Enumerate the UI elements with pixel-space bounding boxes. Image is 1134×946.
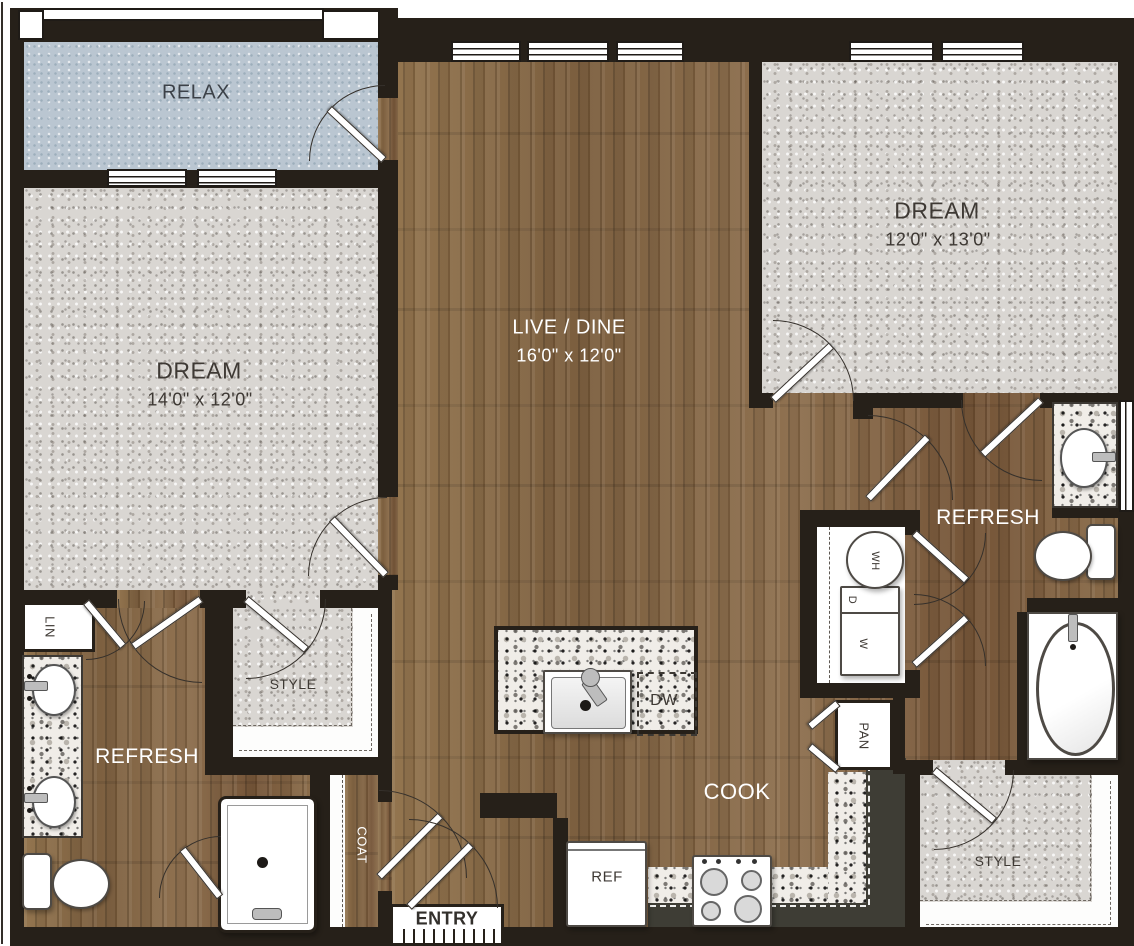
cabinet-right-run [866,758,906,927]
vanity-left-faucet-2 [24,793,48,803]
wall-laundry-top [800,510,920,527]
room-label-style-left: STYLE [270,676,317,692]
room-label-style-right: STYLE [975,853,1022,869]
stove-burner-3 [701,901,721,921]
room-dims-dream-left: 14'0" x 12'0" [147,390,252,411]
linen-closet [22,602,95,652]
wall-style-right-top-b [1005,760,1118,775]
wall-living-left-c [378,188,398,497]
wall-tub-left [1017,612,1027,760]
label-refrigerator: REF [591,869,623,886]
window-bedroom-right-1 [849,41,934,62]
room-dims-live-dine: 16'0" x 12'0" [516,346,621,367]
plan-outer-hairline [1,2,3,944]
room-label-relax: RELAX [162,82,230,105]
room-label-coat: COAT [355,826,370,863]
room-label-cook: COOK [704,779,771,805]
wall-style-left-side [205,608,233,757]
vanity-left-dot-1a [27,674,32,679]
wall-bedroom-right-bottom-a [749,393,773,408]
window-living-1 [451,41,521,62]
room-label-linen: LIN [43,616,58,638]
label-washer: W [857,639,869,650]
refrigerator-top-line [568,849,645,851]
window-bedroom-right-2 [941,41,1024,62]
room-label-entry: ENTRY [416,909,479,930]
bathtub-faucet [1068,614,1078,642]
entry-threshold-ticks [395,929,500,943]
vanity-left-dot-2b [27,808,32,813]
vanity-left-dot-1b [27,696,32,701]
wall-style-left-bottom [205,757,392,775]
room-label-dream-left: DREAM [156,358,242,385]
room-dims-dream-right: 12'0" x 13'0" [885,230,990,251]
window-living-2 [527,41,609,62]
floor-plan: RELAX DREAM 14'0" x 12'0" LIVE / DINE 16… [0,0,1134,946]
wall-pantry-right [893,698,905,774]
toilet-left-bowl [52,859,110,909]
wall-living-left-b [378,160,398,188]
label-dishwasher: DW [650,692,678,710]
toilet-right-bowl [1034,531,1092,581]
wall-tub-top [1027,598,1118,612]
stove-knob-4 [752,859,757,864]
island-sink-drain [580,700,591,711]
room-label-refresh-left: REFRESH [95,745,199,769]
wall-laundry-right-b [905,670,920,683]
room-label-live-dine: LIVE / DINE [512,317,625,340]
window-balcony-2 [197,169,277,187]
stove-burner-4 [734,895,762,923]
stove-burner-2 [741,870,762,891]
wall-style-right-left [905,775,920,927]
bathtub [1036,622,1115,756]
balcony-post-left [18,10,44,40]
balcony-post-right [322,10,380,40]
laundry-door-track-dash [829,527,831,683]
shower-control [252,908,282,920]
wall-kitchen-stub [480,793,557,818]
stove-knob-3 [736,859,741,864]
window-living-3 [616,41,684,62]
wall-laundry-left [800,527,817,698]
stove-burner-1 [700,868,728,896]
wall-style-right-top-a [905,760,933,775]
vanity-left-dot-2a [27,786,32,791]
wall-bottom-outer [10,927,1134,946]
stove-knob-2 [716,859,721,864]
bathtub-drain [1070,644,1076,650]
wall-living-left-d [378,575,398,590]
room-label-pantry: PAN [857,722,872,749]
window-balcony-1 [107,169,187,187]
toilet-left-tank [22,853,52,910]
counter-right-dash [868,765,871,905]
balcony-rail [40,8,324,21]
stove-knob-1 [702,859,707,864]
wall-vanity-toilet-divider [1052,508,1118,518]
wall-laundry-bottom [800,683,920,698]
washer-dryer-divider [840,612,900,614]
vanity-right-faucet [1092,452,1116,462]
window-bath-right [1119,400,1134,512]
island-faucet [581,668,600,687]
coat-rod-dash [342,775,344,927]
vanity-left-faucet-1 [24,681,48,691]
wall-bedroom-left-bottom-b [200,590,246,608]
room-label-refresh-right: REFRESH [936,506,1040,530]
wall-bedroom-right-left [749,40,762,393]
label-water-heater: WH [869,551,881,570]
counter-right [828,772,866,903]
shower-drain [257,857,268,868]
label-dryer: D [846,596,858,604]
room-label-dream-right: DREAM [894,198,980,225]
